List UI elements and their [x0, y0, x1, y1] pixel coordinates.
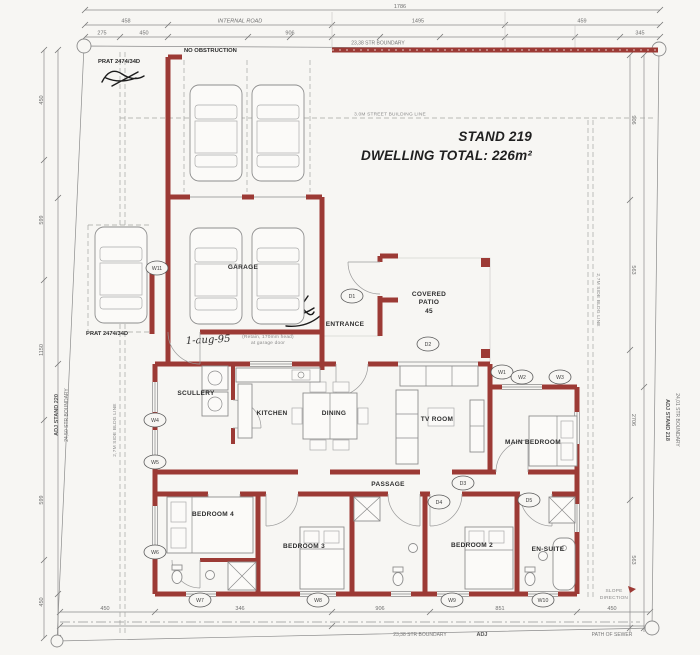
car-1 [190, 85, 242, 181]
room-label-main-bedroom: MAIN BEDROOM [505, 439, 561, 446]
tag-w8-text: W8 [314, 598, 322, 604]
tag-d2: D2 [417, 337, 439, 351]
dim-top-total: 1786 [394, 4, 406, 10]
dim-left-c: 1150 [39, 344, 45, 356]
dim-top-d: 275 [97, 31, 106, 37]
room-label-entrance: ENTRANCE [326, 321, 365, 328]
no-obstruction-label: NO OBSTRUCTION [184, 48, 237, 54]
title-block: STAND 219 DWELLING TOTAL: 226m² [361, 129, 532, 163]
room-label-patio-1: COVERED [412, 291, 446, 298]
street-building-line-label: 3.0M STREET BUILDING LINE [354, 112, 426, 118]
dim-left-d: 599 [39, 495, 45, 504]
room-label-tv-room: TV ROOM [421, 416, 453, 423]
patio-sliding-door [398, 362, 478, 366]
dim-top-g: 345 [635, 31, 644, 37]
basin-bed4-bath [206, 571, 215, 580]
tag-d5: D5 [518, 493, 540, 507]
tag-d5-text: D5 [526, 498, 533, 504]
floor-plan-sheet: 1786 458 1495 459 275 450 906 345 INTERN… [0, 0, 700, 655]
dim-bottom-a: 450 [100, 606, 109, 612]
floor-plan-drawing: 1786 458 1495 459 275 450 906 345 INTERN… [0, 0, 700, 655]
room-label-bedroom-2: BEDROOM 2 [451, 542, 493, 549]
toilet-ensuite [525, 567, 535, 586]
tag-d1-text: D1 [349, 294, 356, 300]
tag-w10-text: W10 [538, 598, 549, 604]
tag-w1: W1 [491, 365, 513, 379]
dimension-lines-left: 450 599 1150 599 450 [39, 47, 61, 641]
side-building-line-right-label: 2,7M SIDE BLDG LINE [595, 273, 601, 326]
dim-bottom-b: 346 [235, 606, 244, 612]
dim-right-a: 906 [630, 115, 636, 124]
sewer-label: PATH OF SEWER [592, 632, 633, 638]
dimension-lines-top: 1786 458 1495 459 275 450 906 345 INTERN… [82, 4, 663, 47]
dim-top-a: 458 [121, 19, 130, 25]
dim-top-e: 450 [139, 31, 148, 37]
toilet-mid-bath [393, 567, 403, 586]
car-2 [252, 85, 304, 181]
tag-w7: W7 [189, 593, 211, 607]
top-boundary-label: 23,38 STR BOUNDARY [351, 41, 405, 47]
tag-w2: W2 [511, 370, 533, 384]
patio-post-2 [481, 349, 490, 358]
stand-number: STAND 219 [458, 129, 532, 144]
bed-3 [300, 527, 344, 589]
car-5 [95, 227, 147, 323]
tag-w1-text: W1 [498, 370, 506, 376]
dim-bottom-e: 450 [607, 606, 616, 612]
survey-peg-bottom-right [645, 621, 659, 635]
room-label-passage: PASSAGE [371, 481, 405, 488]
room-label-patio-2: PATIO [419, 299, 439, 306]
garage-note-1: (Retain, 170mm head) [242, 334, 294, 340]
bed-2 [465, 527, 513, 589]
stamp-top-text: PRAT 2474/34D [98, 59, 140, 65]
patio-post-1 [481, 258, 490, 267]
toilet-bed4-bath [172, 565, 182, 584]
handwritten-date: 1-aug-95 [186, 334, 231, 347]
tag-w4-text: W4 [151, 418, 159, 424]
tag-w5: W5 [144, 455, 166, 469]
dim-right-d: 563 [630, 555, 636, 564]
survey-peg-top-left [77, 39, 91, 53]
dim-right-c: 2706 [630, 414, 636, 426]
car-4 [252, 228, 304, 324]
tag-w3-text: W3 [556, 375, 564, 381]
tag-w7-text: W7 [196, 598, 204, 604]
signature-icon [102, 71, 144, 86]
tag-d1: D1 [341, 289, 363, 303]
shower-mid-bath [354, 497, 380, 521]
side-building-line-left-label: 2,7M SIDE BLDG LINE [112, 403, 118, 456]
room-label-dining: DINING [322, 410, 347, 417]
left-adj-stand-label: ADJ STAND 220 [54, 394, 60, 436]
slope-arrow-icon [628, 586, 636, 593]
slope-direction-label-2: DIRECTION [600, 595, 629, 601]
dim-top-b: 1495 [412, 19, 424, 25]
tag-w5-text: W5 [151, 460, 159, 466]
tag-w11: W11 [146, 261, 168, 275]
tag-d2-text: D2 [425, 342, 432, 348]
cars [95, 85, 304, 324]
internal-road-label: INTERNAL ROAD [218, 19, 263, 25]
dim-bottom-d: 851 [495, 606, 504, 612]
tag-w11-text: W11 [152, 266, 162, 272]
dim-left-b: 599 [39, 215, 45, 224]
tv-room-furniture [396, 366, 484, 464]
tag-d3-text: D3 [460, 481, 467, 487]
dwelling-total: DWELLING TOTAL: 226m² [361, 148, 532, 163]
entrance-walls [380, 256, 398, 336]
room-label-bedroom-3: BEDROOM 3 [283, 543, 325, 550]
approval-stamp-top: PRAT 2474/34D [98, 59, 144, 86]
dim-bottom-c: 906 [375, 606, 384, 612]
shower-bed4-bath [228, 562, 256, 590]
tag-w2-text: W2 [518, 375, 526, 381]
tag-w3: W3 [549, 370, 571, 384]
room-label-scullery: SCULLERY [177, 390, 215, 397]
right-adj-stand-label: ADJ STAND 218 [664, 399, 670, 441]
dim-left-e: 450 [39, 597, 45, 606]
room-label-ensuite: EN-SUITE [532, 546, 565, 553]
dimension-lines-right: 906 563 2706 563 [627, 52, 647, 632]
room-label-kitchen: KITCHEN [257, 410, 288, 417]
slope-direction-label-1: SLOPE [606, 588, 623, 594]
garage-note-2: at garage door [251, 340, 285, 346]
tag-w8: W8 [307, 593, 329, 607]
dim-right-b: 563 [630, 265, 636, 274]
room-label-bedroom-4: BEDROOM 4 [192, 511, 234, 518]
car-3 [190, 228, 242, 324]
tag-d4-text: D4 [436, 500, 443, 506]
dim-left-a: 450 [39, 95, 45, 104]
tag-w6-text: W6 [151, 550, 159, 556]
tag-w4: W4 [144, 413, 166, 427]
tag-w9-text: W9 [448, 598, 456, 604]
tag-w6: W6 [144, 545, 166, 559]
bed-4 [167, 497, 253, 553]
left-boundary-label: 24,50 STR BOUNDARY [64, 388, 70, 442]
right-boundary-label: 24,01 STR BOUNDARY [674, 393, 680, 447]
survey-peg-bottom-left [51, 635, 63, 647]
shower-ensuite [549, 497, 575, 523]
dim-top-f: 906 [285, 31, 294, 37]
room-label-patio-3: 45 [425, 308, 433, 315]
tag-w9: W9 [441, 593, 463, 607]
tag-d3: D3 [452, 476, 474, 490]
basin-mid-bath [409, 544, 418, 553]
tag-w10: W10 [532, 593, 554, 607]
tag-d4: D4 [428, 495, 450, 509]
dim-top-c: 459 [577, 19, 586, 25]
room-label-garage: GARAGE [228, 264, 259, 271]
bottom-adj-label: ADJ [476, 632, 487, 638]
